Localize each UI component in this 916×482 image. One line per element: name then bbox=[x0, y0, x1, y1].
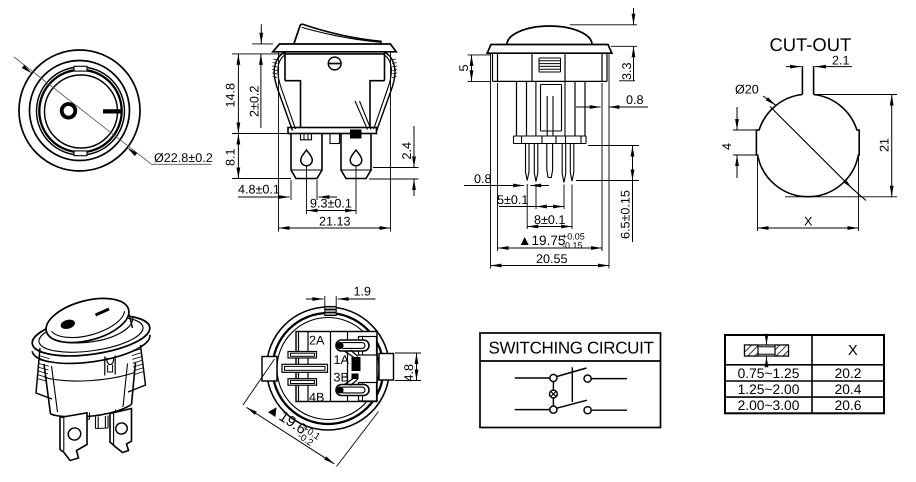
svg-text:0.8: 0.8 bbox=[626, 93, 644, 107]
svg-text:0.75~1.25: 0.75~1.25 bbox=[738, 366, 800, 381]
svg-text:X: X bbox=[848, 343, 858, 359]
svg-text:3.3: 3.3 bbox=[620, 62, 634, 80]
svg-text:20.4: 20.4 bbox=[835, 382, 862, 397]
svg-text:X: X bbox=[804, 215, 813, 229]
svg-text:21.13: 21.13 bbox=[319, 215, 351, 229]
svg-text:1A: 1A bbox=[334, 353, 350, 367]
svg-text:2A: 2A bbox=[309, 334, 325, 348]
svg-text:20.2: 20.2 bbox=[835, 366, 862, 381]
svg-text:21: 21 bbox=[878, 138, 892, 152]
svg-text:20.55: 20.55 bbox=[536, 252, 568, 266]
svg-text:9.3±0.1: 9.3±0.1 bbox=[310, 197, 352, 211]
svg-text:Ø22.8±0.2: Ø22.8±0.2 bbox=[154, 151, 213, 165]
svg-text:4.8±0.1: 4.8±0.1 bbox=[238, 183, 280, 197]
svg-text:-0.15: -0.15 bbox=[562, 241, 583, 251]
svg-text:2.1: 2.1 bbox=[832, 54, 850, 68]
svg-text:6.5±0.15: 6.5±0.15 bbox=[619, 190, 633, 239]
svg-text:2.4: 2.4 bbox=[400, 142, 414, 160]
svg-text:8±0.1: 8±0.1 bbox=[534, 213, 565, 227]
svg-text:14.8: 14.8 bbox=[224, 83, 238, 108]
svg-text:5±0.1: 5±0.1 bbox=[497, 193, 528, 207]
svg-text:3B: 3B bbox=[334, 371, 349, 385]
svg-text:2±0.2: 2±0.2 bbox=[248, 86, 262, 117]
svg-text:20.6: 20.6 bbox=[835, 398, 862, 413]
svg-text:8.1: 8.1 bbox=[224, 148, 238, 166]
svg-text:CUT-OUT: CUT-OUT bbox=[770, 34, 852, 55]
svg-text:▲19.75: ▲19.75 bbox=[518, 233, 565, 248]
svg-text:5: 5 bbox=[457, 64, 471, 71]
svg-text:1.9: 1.9 bbox=[354, 285, 372, 299]
svg-text:2.00~3.00: 2.00~3.00 bbox=[738, 398, 800, 413]
svg-text:0.8: 0.8 bbox=[474, 172, 492, 186]
svg-text:Ø20: Ø20 bbox=[735, 83, 759, 97]
svg-text:4B: 4B bbox=[309, 391, 324, 405]
svg-text:4: 4 bbox=[720, 143, 734, 150]
svg-text:SWITCHING CIRCUIT: SWITCHING CIRCUIT bbox=[489, 339, 654, 358]
svg-text:4.8: 4.8 bbox=[402, 364, 416, 382]
svg-text:1.25~2.00: 1.25~2.00 bbox=[738, 382, 800, 397]
